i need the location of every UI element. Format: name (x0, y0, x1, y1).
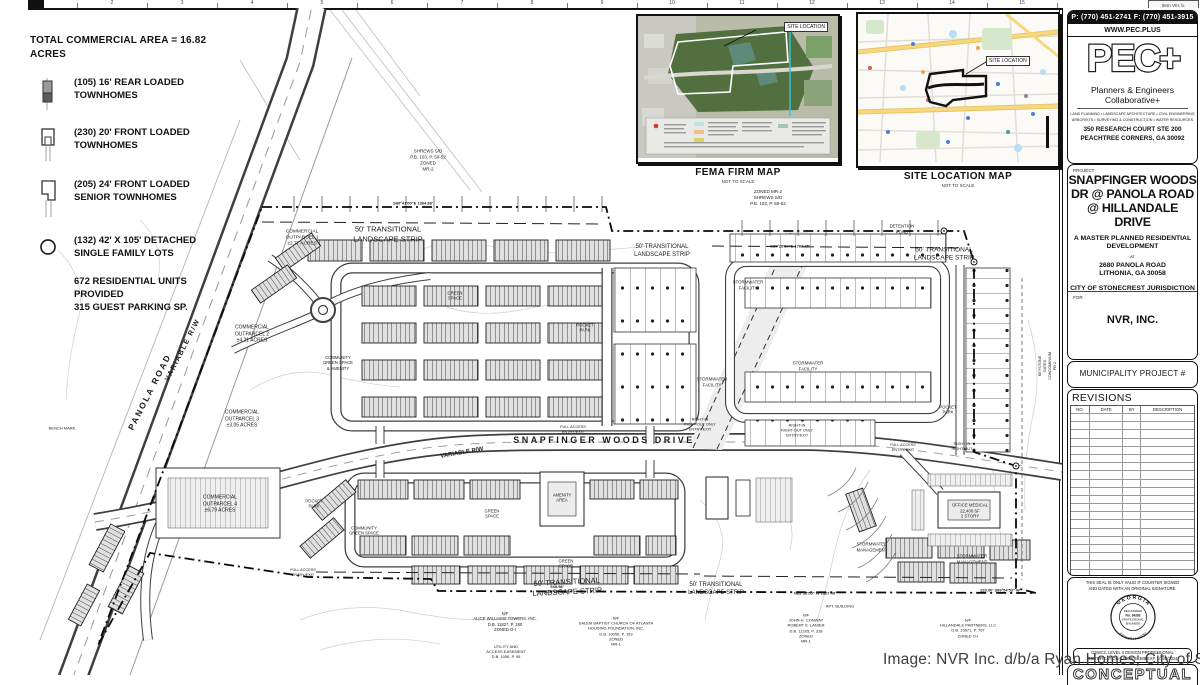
fema-map-scale-note: NOT TO SCALE (636, 179, 840, 184)
plan-sheet: 123456789101112131415 Item VIII. b. (0, 0, 1200, 675)
revisions-header: NO. DATE BY DESCRIPTION (1071, 406, 1194, 413)
ruler-number: 13 (879, 0, 885, 6)
firm-services-2: ARBORISTS • SURVEYING & CONSTRUCTION • W… (1068, 118, 1197, 124)
revision-row (1071, 454, 1194, 462)
revisions-panel: REVISIONS NO. DATE BY DESCRIPTION (1067, 389, 1198, 576)
ruler-number: 11 (739, 0, 744, 6)
municipality-panel: MUNICIPALITY PROJECT # (1067, 361, 1198, 388)
client-section: FOR NVR, INC. (1068, 291, 1197, 326)
revision-row (1071, 487, 1194, 495)
revision-row (1071, 552, 1194, 560)
firm-address-2: PEACHTREE CORNERS, GA 30092 (1068, 135, 1197, 144)
ruler-number: 2 (111, 0, 114, 6)
revisions-col-date: DATE (1089, 406, 1122, 413)
detached-lot-icon (30, 235, 74, 259)
project-title: SNAPFINGER WOODS DR @ PANOLA ROAD @ HILL… (1068, 174, 1197, 230)
project-at: AT (1068, 254, 1197, 259)
revision-row (1071, 560, 1194, 568)
legend-item-label: (105) 16' REAR LOADED TOWNHOMES (74, 77, 184, 103)
revision-row (1071, 421, 1194, 429)
revisions-rows (1071, 413, 1194, 576)
revision-row (1071, 479, 1194, 487)
senior-townhome-icon (30, 179, 74, 219)
project-address-1: 2680 PANOLA ROAD (1068, 262, 1197, 271)
legend-item-label: (230) 20' FRONT LOADED TOWNHOMES (74, 127, 190, 153)
site-location-caption: SITE LOCATION MAP (856, 171, 1060, 182)
ruler-corner-mark (28, 0, 44, 8)
title-block: P: (770) 451-2741 F: (770) 451-3915 WWW.… (1062, 8, 1200, 675)
ruler-number: 15 (1019, 0, 1025, 6)
firm-website: WWW.PEC.PLUS (1068, 24, 1197, 37)
revision-row (1071, 528, 1194, 536)
ruler-number: 3 (181, 0, 184, 6)
project-subtitle: A MASTER PLANNED RESIDENTIAL DEVELOPMENT (1068, 235, 1197, 252)
municipality-project: MUNICIPALITY PROJECT # (1068, 362, 1197, 385)
rear-loaded-townhome-icon (30, 77, 74, 111)
project-label: PROJECT (1068, 165, 1197, 173)
firm-panel: P: (770) 451-2741 F: (770) 451-3915 WWW.… (1067, 10, 1198, 164)
revision-row (1071, 519, 1194, 527)
ruler-number: 7 (461, 0, 464, 6)
ruler-number: 9 (601, 0, 604, 6)
ruler-number: 10 (669, 0, 675, 6)
site-location-tag: SITE LOCATION (986, 56, 1030, 66)
revision-row (1071, 536, 1194, 544)
for-label: FOR (1068, 292, 1197, 300)
ruler-number: 8 (531, 0, 534, 6)
pec-logo: PEC+ (1073, 37, 1193, 79)
revisions-col-description: DESCRIPTION (1140, 406, 1194, 413)
ruler-number: 12 (809, 0, 815, 6)
front-loaded-townhome-icon (30, 127, 74, 163)
revision-row (1071, 413, 1194, 421)
fema-map-inset: SITE LOCATION FEMA FIRM MAP NOT TO SCALE (636, 14, 840, 184)
svg-text:G E O R G I A: G E O R G I A (1115, 595, 1150, 607)
revisions-table: NO. DATE BY DESCRIPTION (1070, 405, 1195, 576)
revision-row (1071, 470, 1194, 478)
revisions-title: REVISIONS (1068, 390, 1197, 405)
svg-text:ENGINEER: ENGINEER (1125, 622, 1140, 626)
revision-row (1071, 429, 1194, 437)
firm-name: Planners & Engineers Collaborative+ (1068, 85, 1197, 105)
revisions-col-no: NO. (1071, 406, 1089, 413)
site-location-scale-note: NOT TO SCALE (856, 183, 1060, 188)
seal-note: THIS SEAL IS ONLY VALID IF COUNTER SIGNE… (1068, 580, 1197, 591)
ruler-number: 14 (949, 0, 955, 6)
firm-services-1: LAND PLANNING • LANDSCAPE ARCHITECTURE •… (1068, 112, 1197, 118)
revision-row (1071, 569, 1194, 576)
client-name: NVR, INC. (1068, 314, 1197, 326)
legend-item-front-loaded: (230) 20' FRONT LOADED TOWNHOMES (30, 127, 290, 163)
revisions-col-by: BY (1122, 406, 1140, 413)
ruler-number: 6 (391, 0, 394, 6)
legend-item-label: (205) 24' FRONT LOADED SENIOR TOWNHOMES (74, 179, 190, 205)
firm-phone: P: (770) 451-2741 F: (770) 451-3915 (1068, 11, 1197, 24)
ruler-number: 4 (251, 0, 254, 6)
credit-watermark: Image: NVR Inc. d/b/a Ryan Homes; City o… (883, 651, 1200, 669)
legend-item-senior: (205) 24' FRONT LOADED SENIOR TOWNHOMES (30, 179, 290, 219)
firm-address-1: 350 RESEARCH COURT STE 200 (1068, 126, 1197, 135)
legend-title: TOTAL COMMERCIAL AREA = 16.82 ACRES (30, 34, 290, 61)
svg-text:KENNETH J WOOD: KENNETH J WOOD (1118, 631, 1147, 641)
legend-item-label: (132) 42' X 105' DETACHED SINGLE FAMILY … (74, 235, 196, 261)
engineer-seal: G E O R G I A KENNETH J WOOD REGISTERED … (1104, 592, 1162, 642)
revision-row (1071, 495, 1194, 503)
fema-map-caption: FEMA FIRM MAP (636, 167, 840, 178)
legend-summary: 672 RESIDENTIAL UNITS PROVIDED 315 GUEST… (74, 275, 290, 315)
svg-text:REGISTERED: REGISTERED (1123, 609, 1141, 613)
legend: TOTAL COMMERCIAL AREA = 16.82 ACRES (105… (30, 34, 290, 315)
fema-map-image: SITE LOCATION (636, 14, 840, 164)
fema-site-location-tag: SITE LOCATION (784, 22, 828, 32)
revision-row (1071, 544, 1194, 552)
site-location-image: SITE LOCATION (856, 12, 1060, 168)
project-address-2: LITHONIA, GA 30058 (1068, 270, 1197, 279)
site-location-inset: SITE LOCATION SITE LOCATION MAP NOT TO S… (856, 12, 1060, 188)
revision-row (1071, 511, 1194, 519)
revision-row (1071, 446, 1194, 454)
legend-item-rear-loaded: (105) 16' REAR LOADED TOWNHOMES (30, 77, 290, 111)
project-panel: PROJECT SNAPFINGER WOODS DR @ PANOLA ROA… (1067, 164, 1198, 360)
site-location-graphic (858, 14, 1058, 162)
svg-text:PEC+: PEC+ (1086, 38, 1179, 79)
revision-row (1071, 438, 1194, 446)
revision-row (1071, 462, 1194, 470)
fema-map-graphic (638, 16, 838, 158)
ruler-number: 5 (321, 0, 324, 6)
firm-divider (1077, 108, 1188, 109)
legend-item-detached: (132) 42' X 105' DETACHED SINGLE FAMILY … (30, 235, 290, 261)
revision-row (1071, 503, 1194, 511)
